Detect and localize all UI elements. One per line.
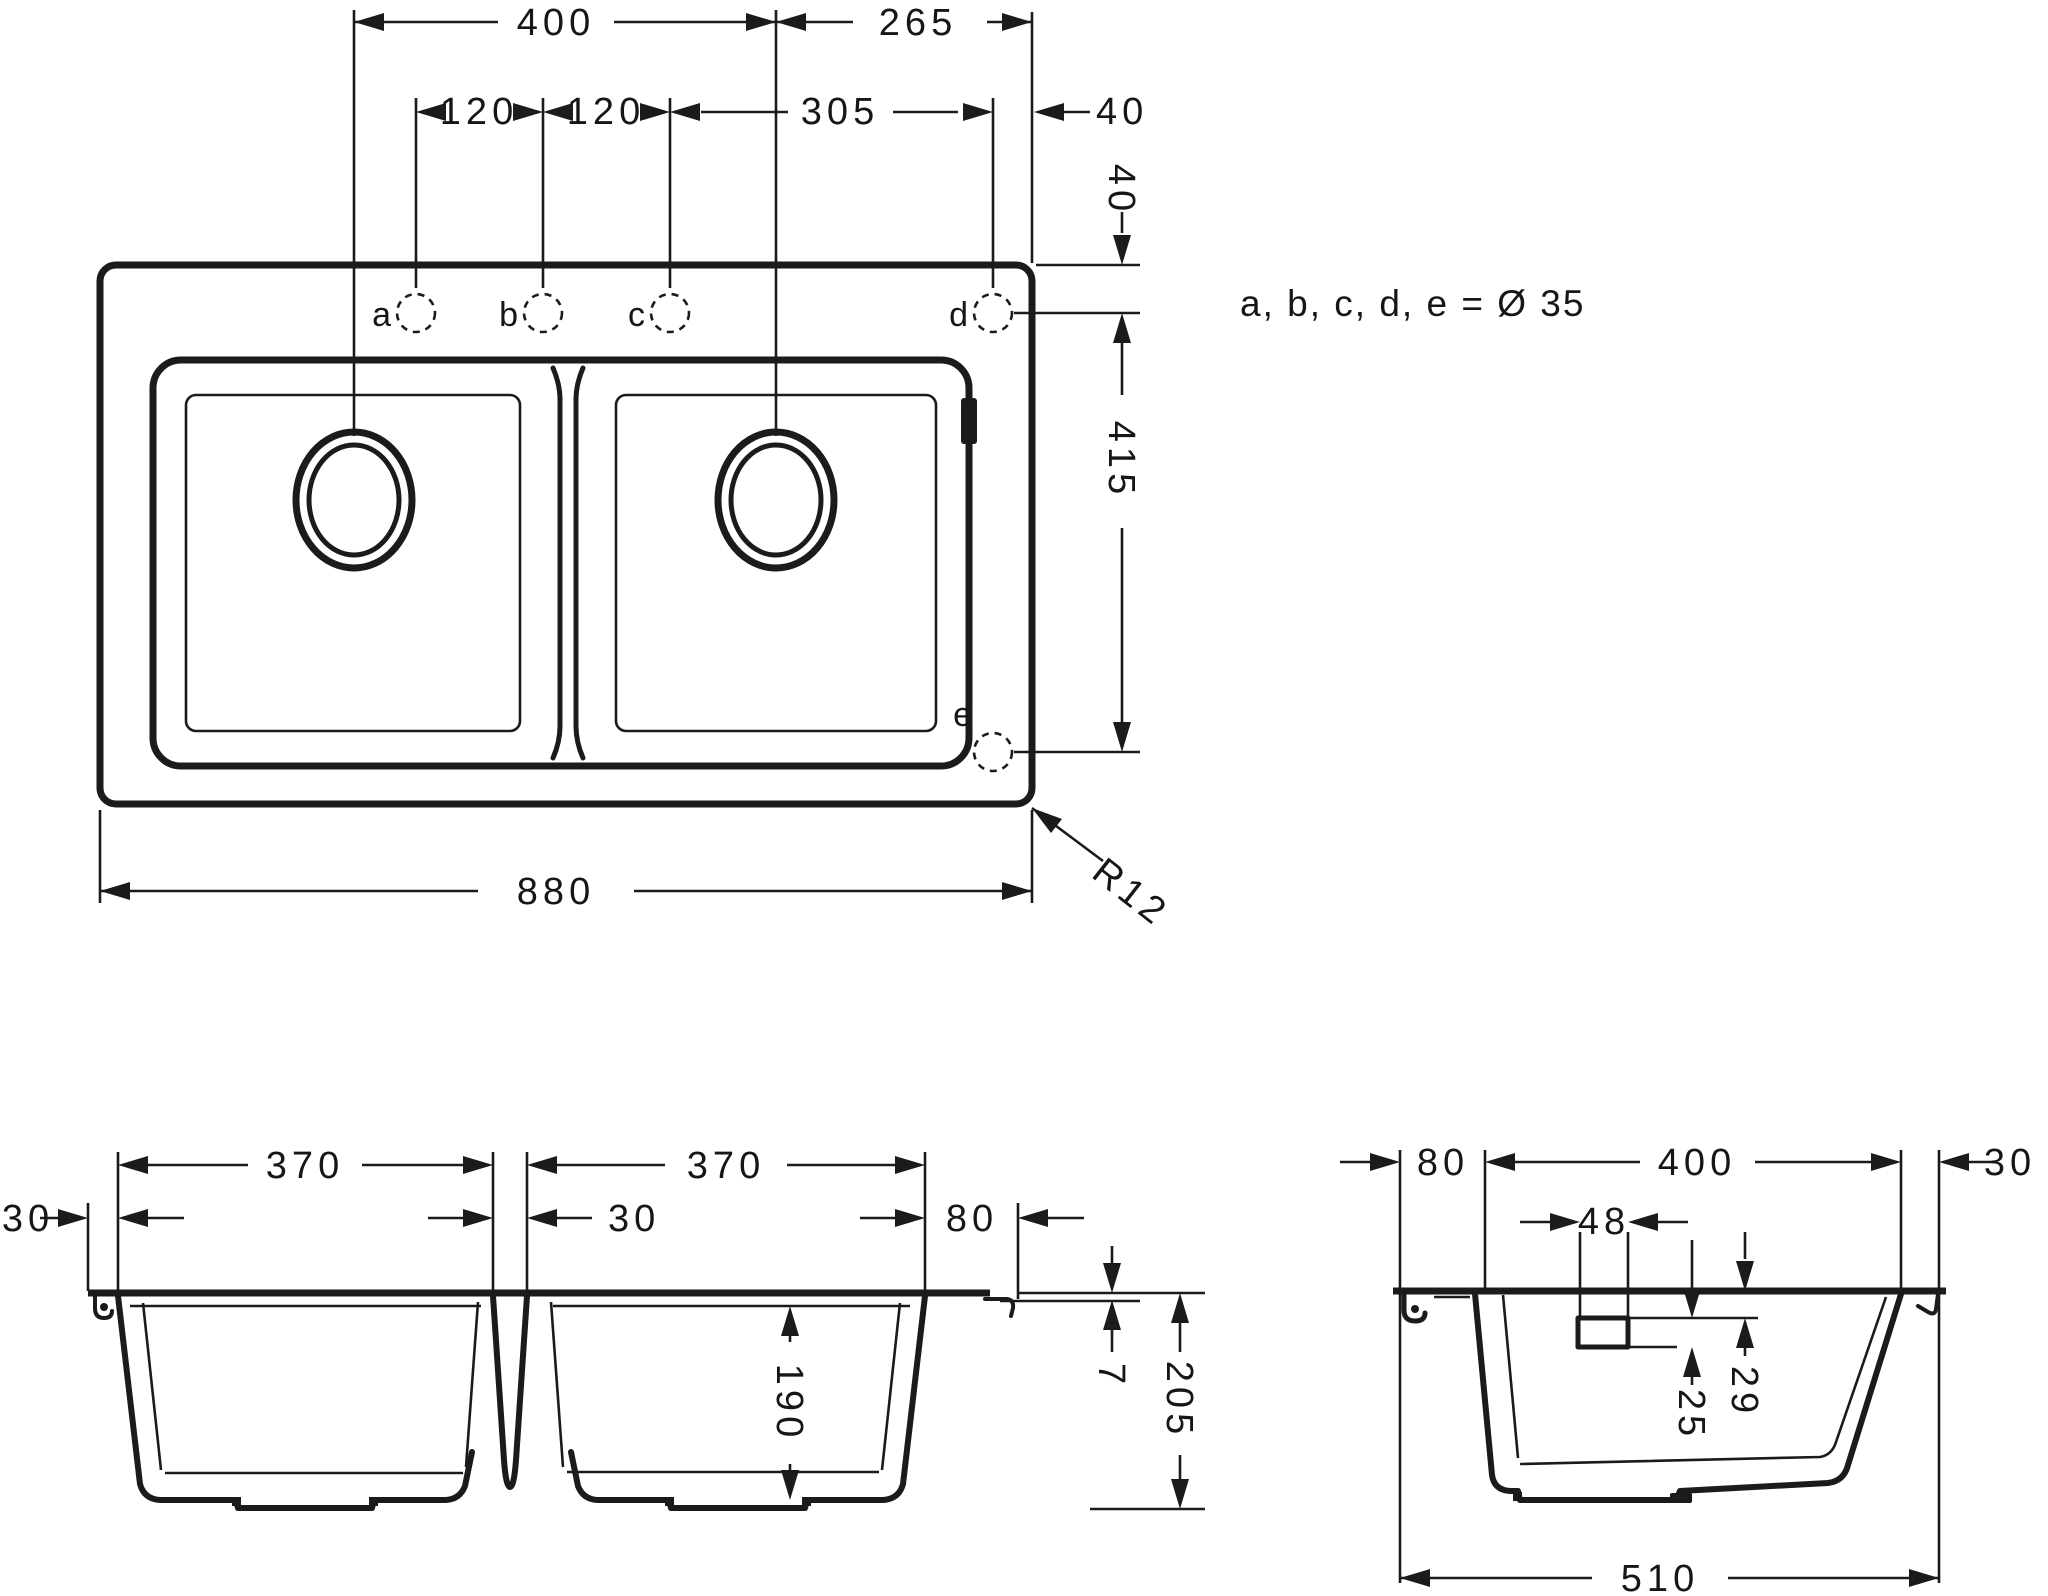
front-dim-370-right: 370 [687, 1145, 765, 1187]
plan-dim-120-left: 120 [440, 91, 518, 133]
front-dim-80: 80 [946, 1198, 998, 1240]
side-dimension-lines [1340, 1162, 1997, 1578]
front-divider-outline [493, 1296, 527, 1487]
side-dim-48: 48 [1578, 1201, 1630, 1243]
hole-c-label: c [628, 296, 645, 334]
spec-sheet-page: a b c d e 400 265 120 120 305 40 40 415 … [0, 0, 2048, 1596]
plan-dim-40-vertical: 40 [1100, 164, 1142, 216]
plan-dim-880: 880 [517, 871, 595, 913]
plan-dim-415: 415 [1100, 421, 1142, 499]
hole-d-circle [974, 294, 1012, 332]
plan-dim-40-horizontal: 40 [1096, 91, 1148, 133]
front-dim-30-left: 30 [2, 1198, 54, 1240]
front-dim-370-left: 370 [266, 1145, 344, 1187]
plan-view: a b c d e 400 265 120 120 305 40 40 415 … [100, 2, 1585, 935]
front-section-view: 370 370 30 30 80 190 7 205 [2, 1145, 1205, 1509]
hole-c-circle [651, 294, 689, 332]
side-dim-510: 510 [1621, 1558, 1699, 1596]
hole-diameter-note: a, b, c, d, e = Ø 35 [1240, 283, 1585, 324]
front-dim-190: 190 [768, 1364, 810, 1442]
left-drain-inner [309, 445, 399, 555]
side-overflow-opening [1578, 1318, 1628, 1347]
side-dim-30: 30 [1984, 1142, 2036, 1184]
hole-e-label: e [953, 696, 972, 734]
front-right-edge-lip [985, 1299, 1013, 1316]
front-left-lip-dot [100, 1303, 108, 1311]
plan-corner-radius-label: R12 [1084, 850, 1177, 935]
hole-a-label: a [372, 296, 391, 334]
sink-dimension-drawing: a b c d e 400 265 120 120 305 40 40 415 … [0, 0, 2048, 1596]
side-dim-29: 29 [1723, 1366, 1765, 1418]
side-hook-dot [1411, 1305, 1419, 1313]
side-section-view: 80 400 30 48 25 29 510 [1340, 1142, 2036, 1596]
hole-d-label: d [949, 296, 968, 334]
left-drain-outer [296, 432, 412, 568]
hole-a-circle [397, 294, 435, 332]
side-dim-80: 80 [1417, 1142, 1469, 1184]
front-dim-205: 205 [1158, 1361, 1200, 1439]
right-drain-inner [731, 445, 821, 555]
plan-dim-120-right: 120 [567, 91, 645, 133]
plan-dim-265: 265 [879, 2, 957, 44]
hole-b-circle [524, 294, 562, 332]
hole-b-label: b [499, 296, 518, 334]
side-front-edge-lip [1918, 1294, 1938, 1313]
overflow-slot-tab [961, 398, 977, 444]
front-drain-boss-ticks [232, 1497, 811, 1506]
right-drain-outer [718, 432, 834, 568]
bowl-divider [553, 368, 583, 758]
sink-outer-outline [100, 265, 1032, 804]
front-left-bowl-outline [118, 1296, 472, 1508]
side-dim-400: 400 [1658, 1142, 1736, 1184]
side-dim-25: 25 [1670, 1389, 1712, 1441]
front-dim-30-center: 30 [608, 1198, 660, 1240]
hole-e-circle [974, 733, 1012, 771]
side-bowl-inner-lines [1434, 1295, 1886, 1464]
faucet-holes: a b c d e [372, 294, 1012, 771]
front-dim-7: 7 [1090, 1363, 1132, 1389]
plan-dim-305: 305 [801, 91, 879, 133]
plan-dim-400: 400 [517, 2, 595, 44]
front-right-bowl-outline [571, 1296, 925, 1508]
